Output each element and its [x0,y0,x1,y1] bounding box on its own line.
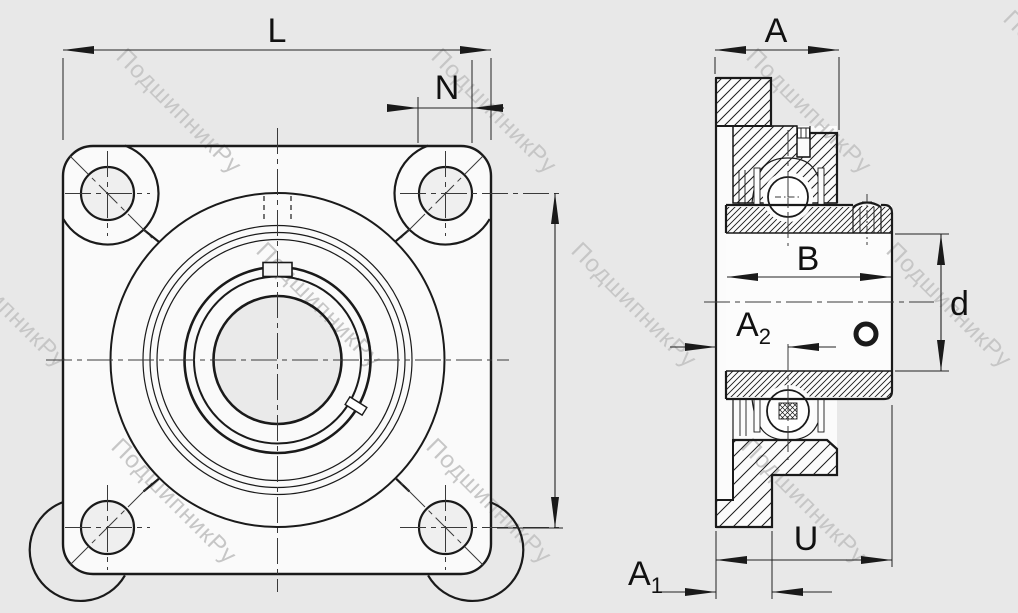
dimension-label-N: N [435,69,460,107]
inner-ring-bottom-wall [726,371,892,397]
dimension-label-L: L [268,12,287,50]
dimension-label-d: d [950,285,969,323]
technical-drawing: ПодшипникРуПодшипникРуПодшипникРуПодшипн… [0,0,1018,613]
grease-plug [798,128,810,138]
flange-top-lug-section [716,78,771,126]
dimension-label-A: A [765,12,788,50]
drawing-stage: ПодшипникРуПодшипникРуПодшипникРуПодшипн… [0,0,1018,613]
dimension-label-U: U [794,520,819,558]
dimension-label-B: B [797,240,820,278]
lubrication-hole [856,324,876,344]
